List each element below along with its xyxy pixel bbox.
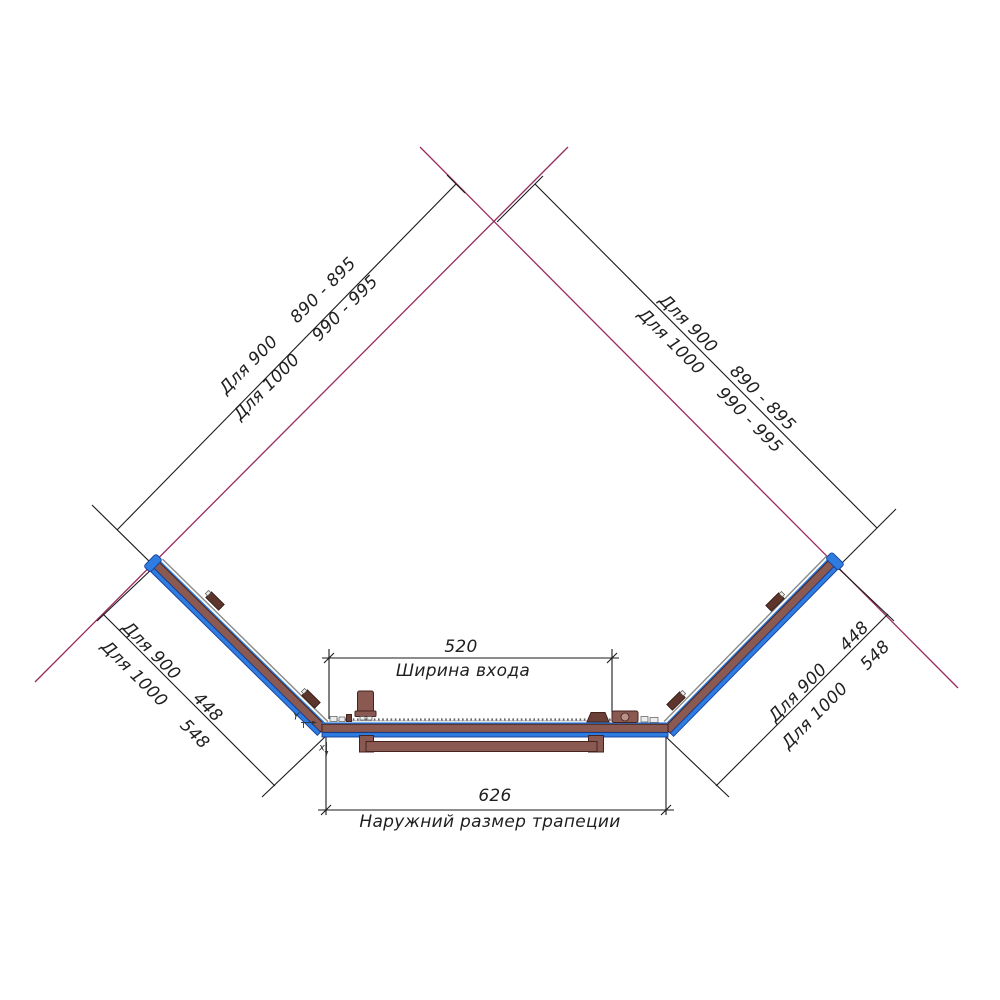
ucs-x-arrowhead xyxy=(325,751,329,756)
dim-text-520: 520 xyxy=(444,637,477,657)
towel-bar xyxy=(360,736,604,753)
dim-label: Наружний размер трапеции xyxy=(359,812,620,832)
dim-text-626: 626 xyxy=(478,786,511,806)
witness-side-left-top xyxy=(97,567,154,621)
roller xyxy=(641,717,648,723)
handle-glide xyxy=(367,717,372,721)
handle-base xyxy=(355,711,376,717)
witness-diagonal-right-top xyxy=(497,176,543,222)
towel-bar-rail xyxy=(366,742,597,752)
axis-letter: x xyxy=(319,743,325,754)
dim-value: 520 xyxy=(444,637,477,657)
axis-label-x: x xyxy=(319,743,325,754)
witness-side-right-top xyxy=(837,567,894,621)
dim-label-entrance-width: Ширина входа xyxy=(396,661,530,681)
roller xyxy=(339,717,345,722)
roller xyxy=(330,717,337,722)
handle-cylinder xyxy=(358,691,374,712)
room-wall-lines xyxy=(35,147,958,688)
dim-value: 626 xyxy=(478,786,511,806)
wall-inner-seal xyxy=(663,556,831,727)
room-wall-line-left xyxy=(35,147,568,682)
carriage-wheel xyxy=(621,713,629,721)
track-profile xyxy=(322,724,668,732)
drawing-page: Для 900 890 - 895 Для 1000 990 - 995 Для… xyxy=(0,0,1000,1000)
roller-carriage xyxy=(587,711,658,723)
handle-glide xyxy=(360,717,365,721)
wall-inner-seal xyxy=(157,558,328,726)
left-corner-hardware xyxy=(330,715,352,722)
witness-side-left-bottom xyxy=(262,735,327,797)
dim-label: Ширина входа xyxy=(396,661,530,681)
door-stop xyxy=(347,715,352,722)
door-handle xyxy=(355,691,376,720)
witness-side-right-bottom xyxy=(664,735,729,797)
roller xyxy=(650,718,658,723)
witness-diagonal-left-bottom xyxy=(92,505,156,568)
drawing-canvas xyxy=(0,0,1000,1000)
axis-letter: Y xyxy=(293,712,299,723)
axis-label-y: Y xyxy=(293,712,299,723)
door-stopper-knob xyxy=(587,713,609,723)
room-wall-line-right xyxy=(420,147,958,688)
dim-label-outer-width: Наружний размер трапеции xyxy=(359,812,620,832)
